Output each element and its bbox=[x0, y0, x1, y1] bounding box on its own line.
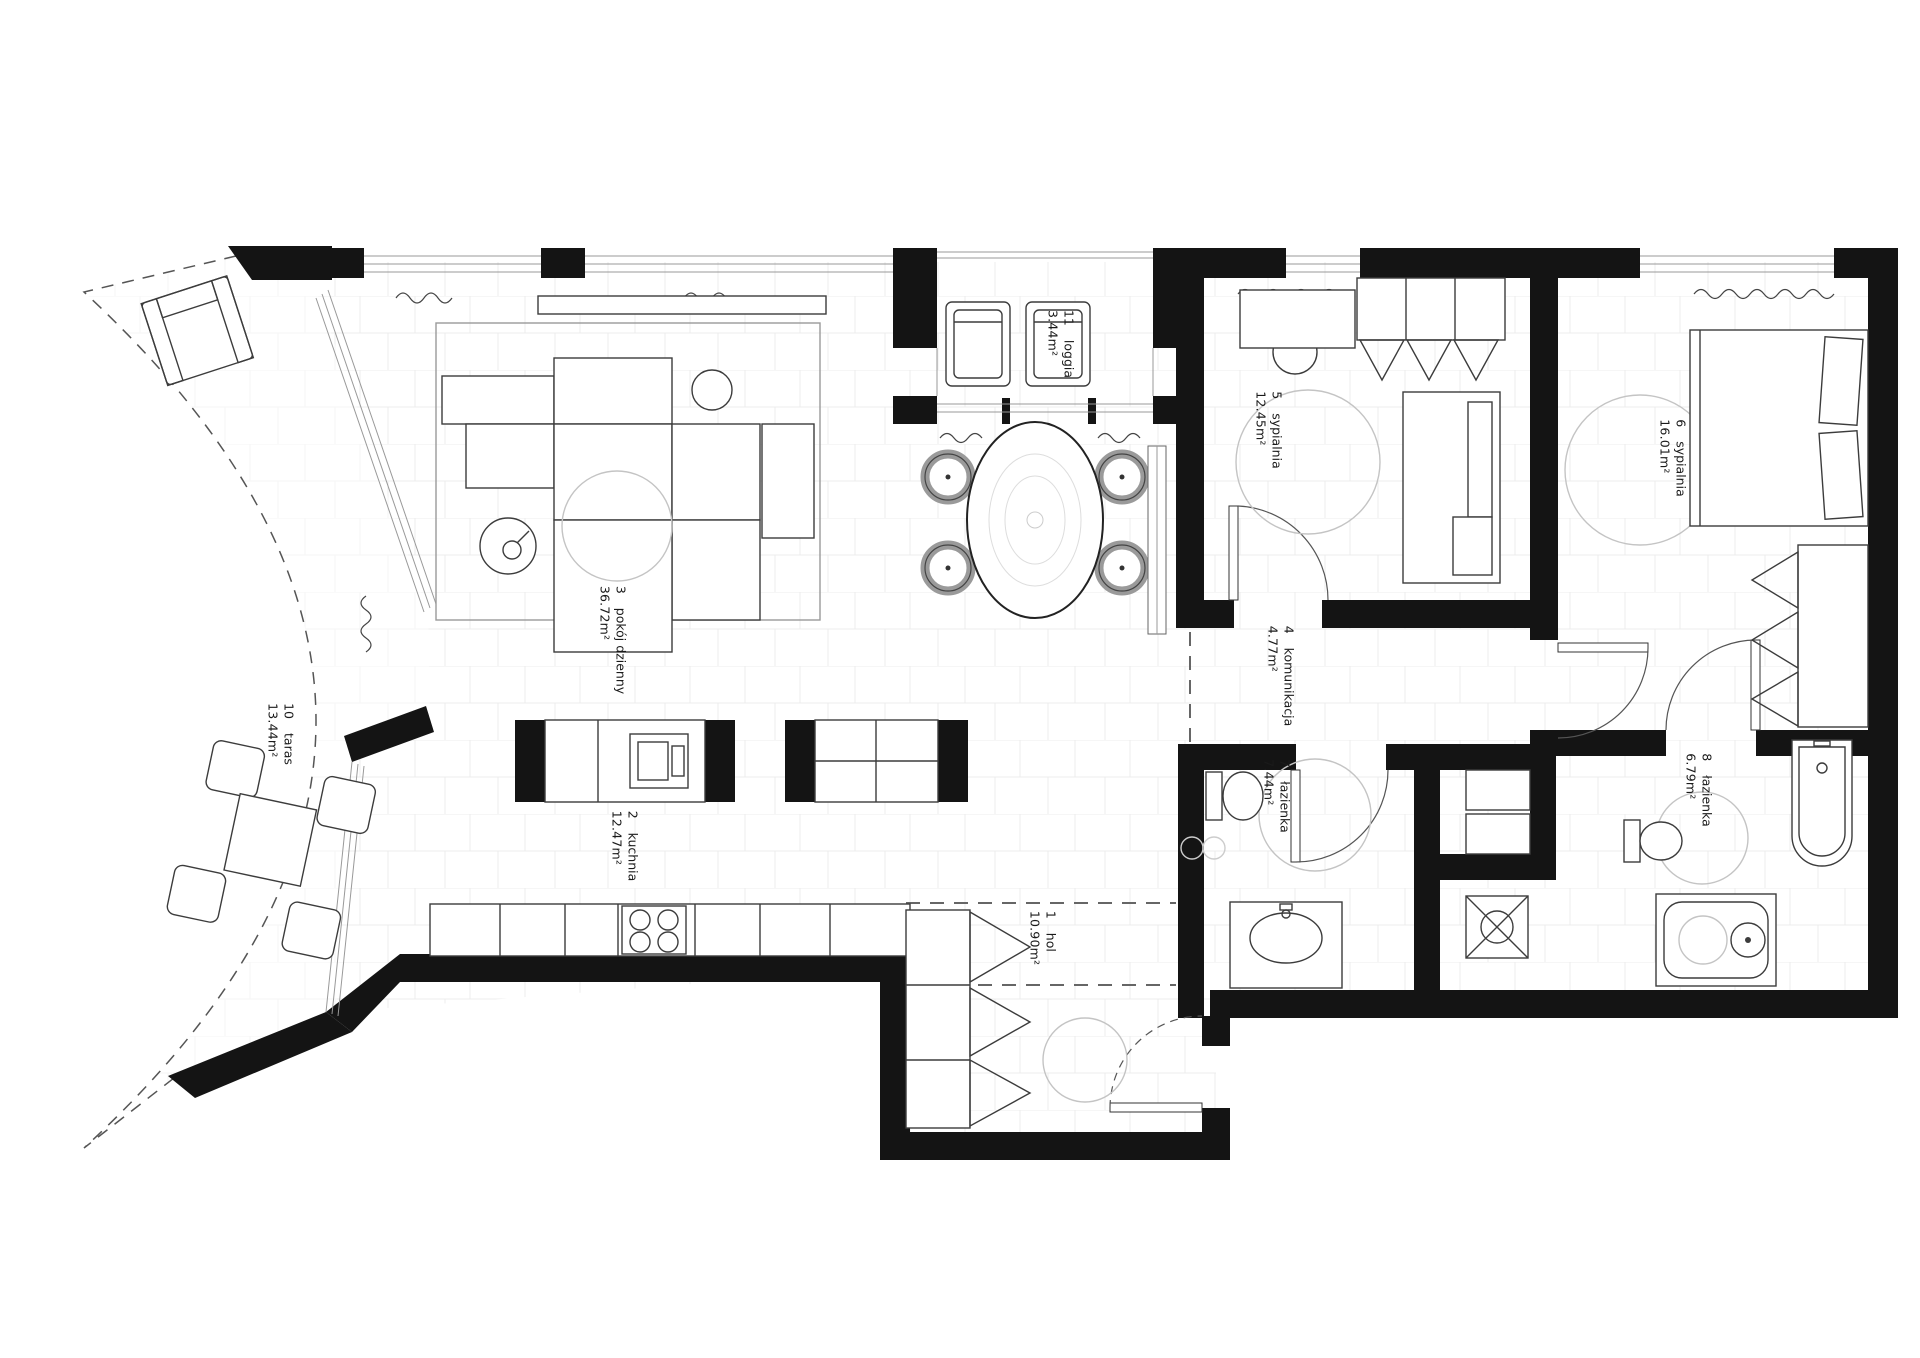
room-label-lazienka-7: 7łazienka 7.44m² bbox=[1260, 759, 1293, 833]
room-area: 3.44m² bbox=[1044, 310, 1060, 378]
room-name: łazienka bbox=[1698, 775, 1714, 827]
shower-tub bbox=[1792, 740, 1852, 866]
plant-table bbox=[480, 518, 536, 574]
dining-chair bbox=[925, 545, 971, 591]
room-area: 4.77m² bbox=[1264, 626, 1280, 727]
room-area: 13.44m² bbox=[264, 703, 280, 765]
kitchen-island-1 bbox=[515, 720, 735, 802]
bed-double bbox=[1690, 330, 1868, 526]
room-number: 8 bbox=[1698, 753, 1714, 761]
toilet bbox=[1624, 820, 1682, 862]
room-name: hol bbox=[1042, 933, 1058, 952]
loggia-chair bbox=[946, 302, 1010, 386]
room-area: 6.79m² bbox=[1682, 753, 1698, 827]
room-label-komunikacja: 4komunikacja 4.77m² bbox=[1264, 626, 1297, 727]
dining-chair bbox=[1099, 545, 1145, 591]
room-label-sypialnia-6: 6sypialnia 16.01m² bbox=[1656, 419, 1689, 496]
room-number: 7 bbox=[1276, 759, 1292, 767]
room-name: sypialnia bbox=[1672, 441, 1688, 497]
room-label-loggia: 11loggia 3.44m² bbox=[1044, 310, 1077, 378]
washer-icon bbox=[1466, 896, 1528, 958]
room-name: pokój dzienny bbox=[612, 608, 628, 694]
room-label-pokoj-dzienny: 3pokój dzienny 36.72m² bbox=[596, 586, 629, 694]
room-name: kuchnia bbox=[624, 833, 640, 882]
toilet bbox=[1206, 772, 1263, 820]
room-label-lazienka-8: 8łazienka 6.79m² bbox=[1682, 753, 1715, 827]
sink-counter bbox=[1230, 902, 1342, 988]
room-area: 16.01m² bbox=[1656, 419, 1672, 496]
room-name: taras bbox=[280, 733, 296, 765]
room-number: 5 bbox=[1268, 391, 1284, 399]
kitchen-island-2 bbox=[785, 720, 968, 802]
room-area: 36.72m² bbox=[596, 586, 612, 694]
room-number: 10 bbox=[280, 703, 296, 719]
room-area: 10.90m² bbox=[1026, 911, 1042, 965]
room-number: 4 bbox=[1280, 626, 1296, 634]
floor-plan-drawing bbox=[0, 0, 1920, 1358]
floor-plan: 1hol 10.90m² 2kuchnia 12.47m² 3pokój dzi… bbox=[0, 0, 1920, 1358]
room-number: 11 bbox=[1060, 310, 1076, 326]
side-table bbox=[692, 370, 732, 410]
room-label-sypialnia-5: 5sypialnia 12.45m² bbox=[1252, 391, 1285, 468]
room-area: 12.47m² bbox=[608, 811, 624, 882]
room-label-hol: 1hol 10.90m² bbox=[1026, 911, 1059, 965]
bathtub bbox=[1656, 894, 1776, 986]
room-number: 6 bbox=[1672, 419, 1688, 427]
room-number: 3 bbox=[612, 586, 628, 594]
room-label-taras: 10taras 13.44m² bbox=[264, 703, 297, 765]
kitchen-counter bbox=[430, 904, 910, 956]
room-name: loggia bbox=[1060, 340, 1076, 378]
room-number: 2 bbox=[624, 811, 640, 819]
room-label-kuchnia: 2kuchnia 12.47m² bbox=[608, 811, 641, 882]
room-area: 7.44m² bbox=[1260, 759, 1276, 833]
room-area: 12.45m² bbox=[1252, 391, 1268, 468]
outdoor-table bbox=[224, 794, 317, 887]
room-number: 1 bbox=[1042, 911, 1058, 919]
room-name: komunikacja bbox=[1280, 648, 1296, 727]
dining-chair bbox=[925, 454, 971, 500]
room-name: łazienka bbox=[1276, 781, 1292, 833]
dining-chair bbox=[1099, 454, 1145, 500]
tv-console bbox=[538, 296, 826, 314]
room-name: sypialnia bbox=[1268, 413, 1284, 469]
bed-single bbox=[1403, 392, 1500, 583]
dining-table bbox=[967, 422, 1103, 618]
